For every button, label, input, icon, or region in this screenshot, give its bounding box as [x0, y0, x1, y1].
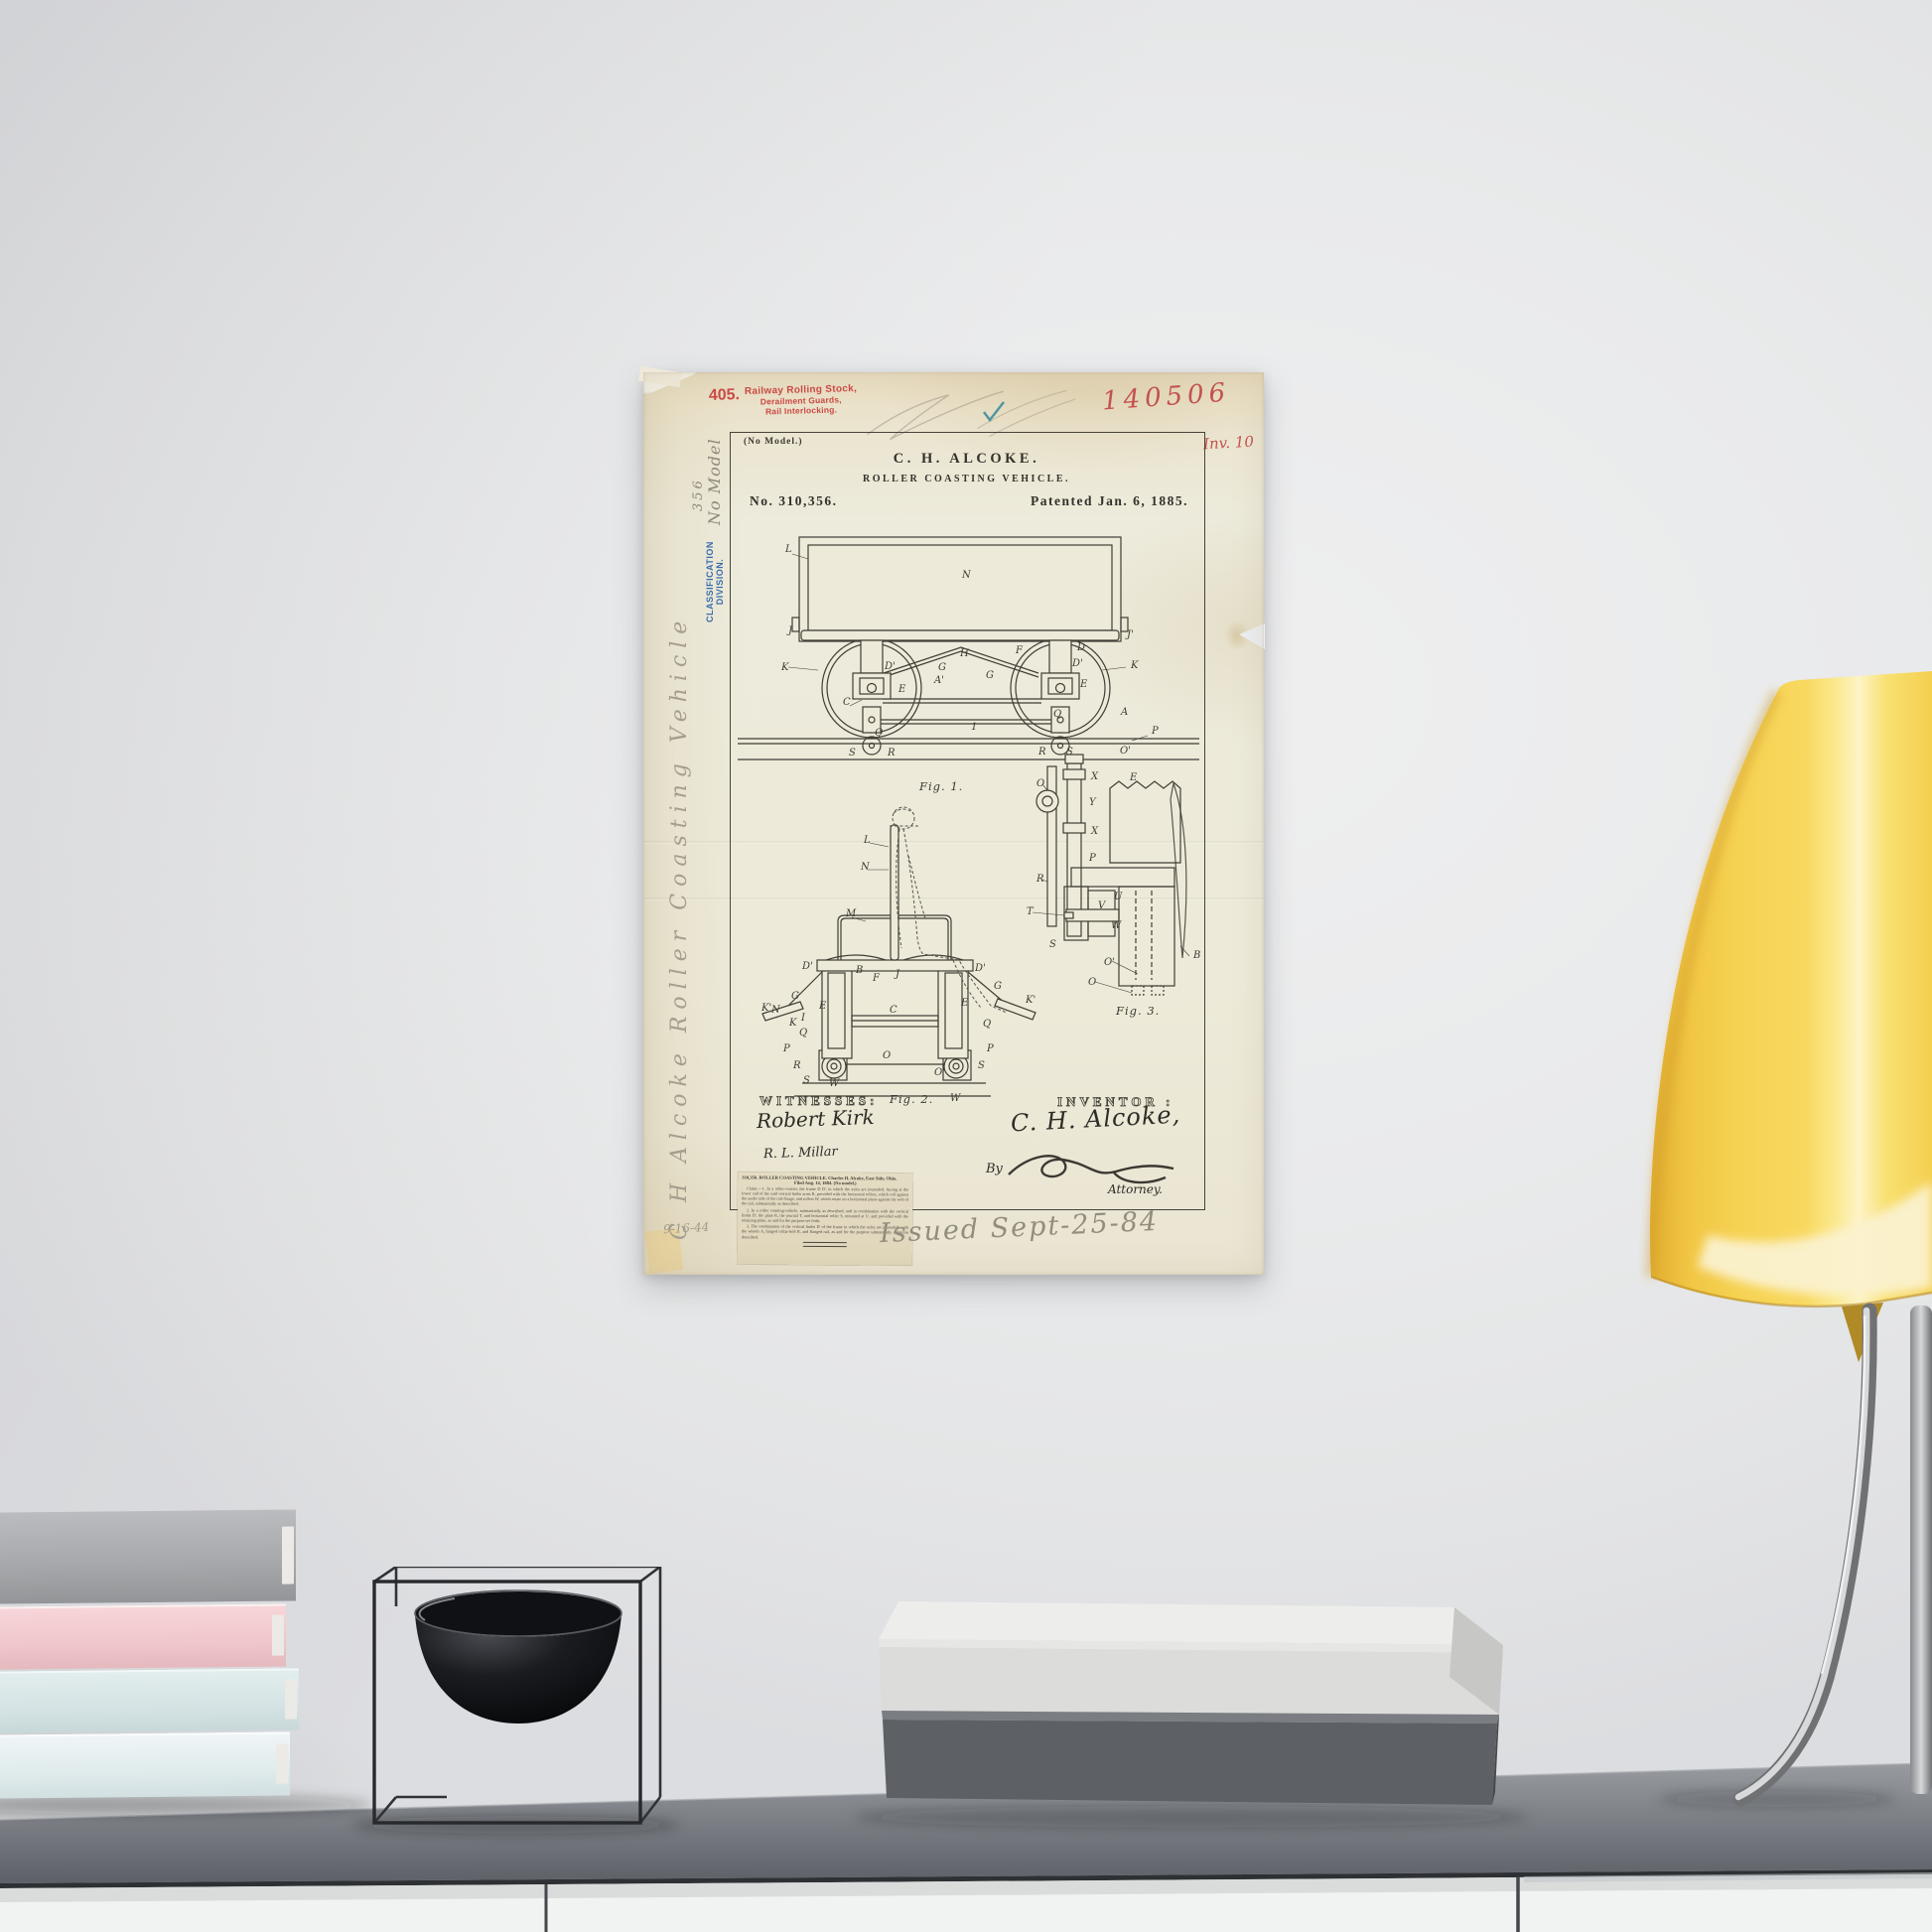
- figure-part-label: O': [1104, 957, 1115, 968]
- patent-drawings: LNJJ'KKDD'D'FHGGA'CEEQQ1APSRRSO' Fig. 1.: [643, 372, 1264, 1275]
- attorney-label: Attorney.: [1108, 1182, 1163, 1196]
- figure-part-label: K: [788, 1018, 797, 1029]
- figure-part-label: N: [770, 1005, 781, 1016]
- lamp-rear-leg: [1910, 1306, 1932, 1794]
- book-pink: [0, 1603, 286, 1669]
- figure-part-label: X: [1090, 771, 1099, 782]
- figure-part-label: R: [1037, 747, 1046, 758]
- figure-part-label: A': [933, 675, 944, 686]
- figure-part-label: S: [849, 748, 856, 759]
- figure-part-label: L: [863, 835, 871, 846]
- book-pages-edge: [282, 1526, 294, 1585]
- figure-part-label: I: [800, 1013, 806, 1024]
- pastel-book-stack: [0, 1511, 310, 1801]
- figure-part-label: R: [792, 1060, 801, 1071]
- figure-part-label: E: [960, 998, 969, 1009]
- witness-signature-1: Robert Kirk: [757, 1105, 875, 1133]
- figure-part-label: Q: [875, 728, 883, 739]
- figure-part-label: X: [1090, 826, 1099, 837]
- figure-part-label: G: [938, 662, 946, 673]
- figure-part-label: G: [986, 670, 994, 681]
- patent-poster: 405. Railway Rolling Stock, Derailment G…: [643, 372, 1264, 1275]
- figure-part-label: M: [845, 908, 857, 919]
- figure-part-label: R: [887, 748, 896, 759]
- figure-part-label: P: [1151, 726, 1159, 737]
- figure-part-label: O': [1120, 746, 1131, 757]
- yellow-table-lamp: [1638, 665, 1932, 1817]
- figure-part-label: C: [843, 697, 851, 708]
- figure-part-label: D: [1076, 642, 1085, 653]
- book-pages-edge: [276, 1743, 288, 1784]
- figure-part-label: S: [978, 1060, 985, 1071]
- figure-part-label: O': [934, 1067, 945, 1078]
- pencil-date-note: 9-16-44: [663, 1220, 710, 1236]
- figure-part-label: F: [872, 973, 881, 984]
- figure-3-detail-view: OXYXEPRTSUVWO'OB Fig. 3.: [1027, 755, 1200, 1018]
- figure-part-label: B: [855, 965, 863, 976]
- figure-3-caption: Fig. 3.: [1115, 1004, 1160, 1018]
- figure-part-label: L: [784, 544, 792, 555]
- book-pale-blue: [0, 1731, 290, 1798]
- figure-part-label: D': [801, 961, 813, 972]
- figure-part-label: E: [897, 684, 906, 695]
- figure-part-label: F: [1015, 645, 1024, 656]
- figure-1-side-view: LNJJ'KKDD'D'FHGGA'CEEQQ1APSRRSO' Fig. 1.: [738, 537, 1199, 793]
- figure-part-label: H: [959, 648, 969, 659]
- witness-signature-2: R. L. Millar: [763, 1145, 838, 1163]
- book-pages-edge: [285, 1680, 297, 1720]
- figure-part-label: K: [780, 662, 789, 673]
- figure-1-caption: Fig. 1.: [918, 779, 963, 793]
- figure-part-label: E: [818, 1001, 827, 1012]
- book-dark-gray: [882, 1711, 1499, 1805]
- figure-part-label: J: [894, 969, 900, 980]
- figure-part-label: D': [1071, 658, 1083, 669]
- figure-part-label: N: [961, 570, 972, 581]
- book-white: [879, 1601, 1503, 1715]
- lamp-stem: [1738, 1311, 1869, 1799]
- clipping-claim: Claim.—1. In a roller-coaster, the frame…: [742, 1185, 908, 1207]
- figure-2-front-view: LNMD'BFJD'GGNKK'EEK'IQQPPRSWOO'SWC Fig. …: [760, 807, 1035, 1106]
- black-bowl: [415, 1590, 621, 1724]
- figure-part-label: Q: [1053, 709, 1061, 720]
- figure-part-label: K': [760, 1003, 771, 1014]
- figure-2-caption: Fig. 2.: [889, 1092, 933, 1106]
- figure-part-label: P: [986, 1043, 994, 1054]
- figure-part-label: Y: [1089, 797, 1097, 808]
- book-gray: [0, 1509, 296, 1603]
- figure-part-label: B: [1192, 950, 1200, 961]
- book-pages-edge: [272, 1615, 284, 1655]
- book-mint: [0, 1668, 299, 1732]
- figure-part-label: O: [1036, 778, 1044, 789]
- clipping-end-rule: [803, 1242, 847, 1247]
- figure-part-label: D': [884, 661, 896, 672]
- figure-part-label: G: [994, 981, 1002, 992]
- figure-part-label: P: [1088, 853, 1096, 864]
- figure-part-label: C: [890, 1005, 897, 1016]
- figure-part-label: Q: [983, 1019, 991, 1030]
- figure-part-label: E: [1129, 772, 1138, 783]
- figure-part-label: N: [860, 862, 871, 873]
- figure-part-label: J: [786, 625, 793, 636]
- figure-part-label: S: [803, 1075, 810, 1086]
- figure-part-label: W: [829, 1078, 840, 1089]
- figure-part-label: S: [1049, 939, 1056, 950]
- figure-part-label: Q: [799, 1028, 807, 1038]
- figure-part-label: P: [782, 1043, 790, 1054]
- figure-part-label: K: [1130, 660, 1139, 671]
- wireframe-cube-bowl: [367, 1567, 665, 1833]
- figure-part-label: R: [1035, 874, 1044, 885]
- figure-part-label: G: [791, 991, 799, 1002]
- figure-part-label: E: [1079, 679, 1088, 690]
- figure-part-label: 1: [971, 722, 977, 733]
- figure-part-label: W: [1111, 920, 1122, 931]
- figure-part-label: D': [974, 963, 986, 974]
- figure-part-label: O: [1088, 977, 1096, 988]
- figure-part-label: A: [1120, 707, 1128, 718]
- lamp-shade: [1650, 671, 1932, 1307]
- figure-part-label: K': [1025, 995, 1035, 1006]
- stacked-books-center: [874, 1593, 1509, 1822]
- figure-part-label: O: [883, 1050, 891, 1061]
- figure-part-label: T: [1027, 906, 1035, 917]
- figure-part-label: J': [1125, 629, 1134, 640]
- figure-part-label: W: [950, 1093, 961, 1104]
- figure-part-label: U: [1114, 892, 1123, 902]
